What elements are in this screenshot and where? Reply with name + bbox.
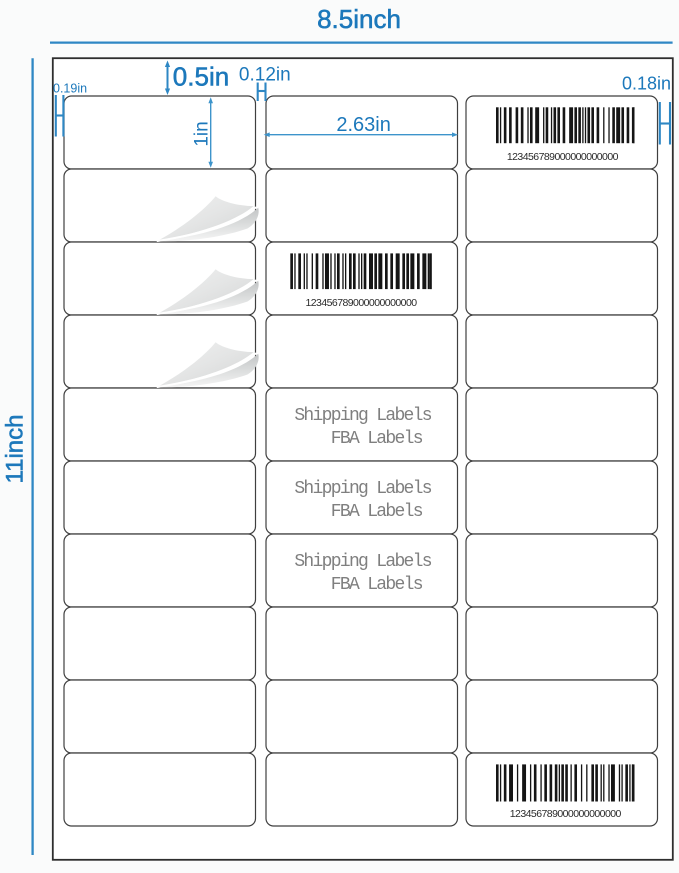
svg-text:8.5inch: 8.5inch	[317, 4, 401, 34]
svg-text:Shipping Labels: Shipping Labels	[294, 552, 431, 572]
svg-text:FBA Labels: FBA Labels	[331, 429, 423, 449]
svg-text:0.18in: 0.18in	[622, 74, 671, 94]
svg-text:0.5in: 0.5in	[173, 62, 229, 92]
svg-text:Shipping Labels: Shipping Labels	[294, 406, 431, 426]
svg-text:2.63in: 2.63in	[336, 114, 391, 136]
svg-text:FBA Labels: FBA Labels	[331, 575, 423, 595]
svg-text:0.19in: 0.19in	[53, 82, 87, 96]
svg-text:FBA Labels: FBA Labels	[331, 502, 423, 522]
svg-text:1in: 1in	[192, 121, 213, 146]
svg-text:11inch: 11inch	[2, 415, 29, 484]
svg-text:123456789000000000000: 123456789000000000000	[510, 808, 622, 820]
svg-text:0.12in: 0.12in	[239, 65, 291, 86]
svg-text:123456789000000000000: 123456789000000000000	[305, 297, 417, 309]
svg-text:123456789000000000000: 123456789000000000000	[507, 151, 619, 163]
svg-text:Shipping Labels: Shipping Labels	[294, 479, 431, 499]
